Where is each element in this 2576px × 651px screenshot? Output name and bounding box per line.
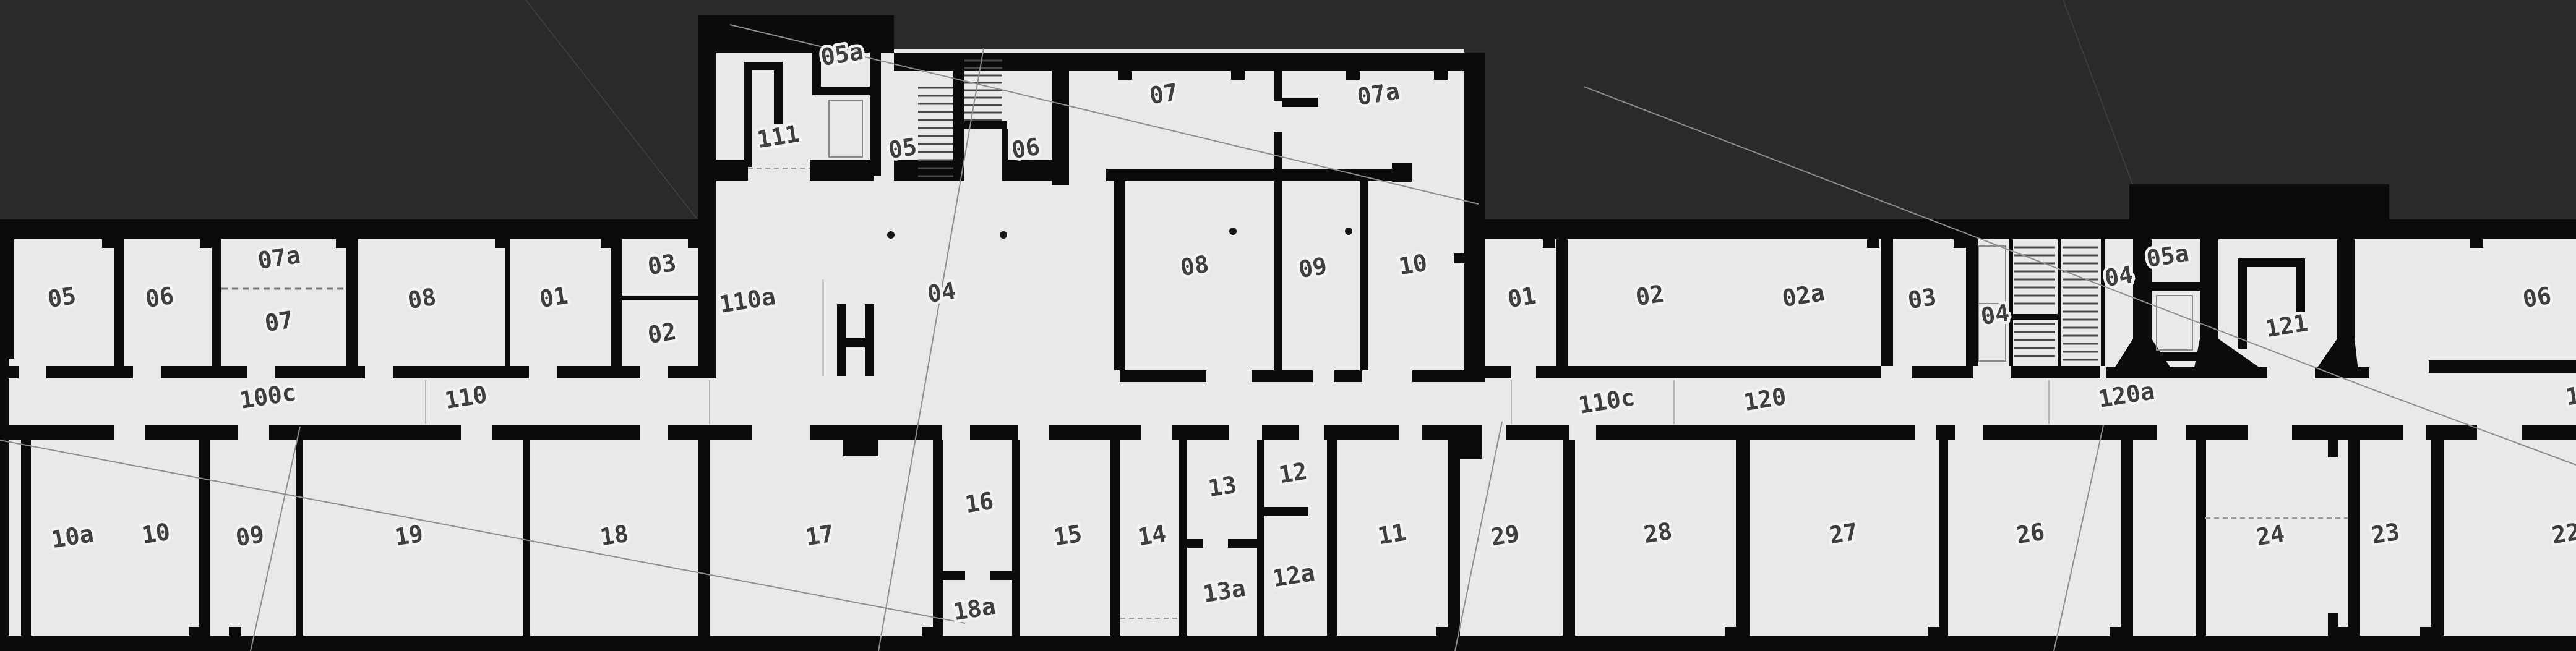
room-label: 09	[234, 521, 266, 552]
room-label: 19	[393, 520, 425, 551]
room-label: 01	[1506, 282, 1538, 313]
room-label: 01	[538, 282, 570, 313]
room-label: 04	[925, 277, 958, 308]
room-label: 02	[1634, 280, 1666, 312]
room-label: 06	[2521, 282, 2553, 313]
room-label: 12	[1277, 457, 1309, 489]
room-label: 10	[1397, 249, 1429, 281]
room-label: 15	[1052, 520, 1084, 551]
floorplan-drawing: 05a11105060707a050607a0708010302110a0408…	[0, 0, 2576, 651]
room-label: 10	[140, 518, 172, 550]
room-label: 26	[2014, 518, 2046, 550]
room-label: 07	[1148, 79, 1180, 110]
room-label: 08	[1179, 250, 1211, 282]
room-label: 07	[263, 306, 295, 338]
room-label: 06	[1010, 133, 1042, 164]
room-label: 29	[1489, 520, 1521, 551]
room-label: 04	[2103, 261, 2135, 292]
room-label: 04	[1979, 299, 2011, 331]
room-label: 22	[2550, 518, 2576, 550]
room-label: 24	[2254, 520, 2286, 551]
room-label: 06	[144, 282, 176, 313]
room-label: 18	[598, 520, 630, 551]
room-label: 09	[1297, 252, 1329, 284]
room-label: 02	[646, 318, 678, 349]
room-label: 13	[1206, 471, 1239, 503]
room-label: 05	[46, 282, 78, 313]
room-label: 08	[406, 283, 438, 315]
room-label: 11	[1376, 519, 1408, 550]
room-label: 17	[804, 520, 836, 551]
room-label: 03	[1906, 283, 1938, 315]
room-label: 28	[1642, 517, 1674, 549]
room-label: 14	[1136, 520, 1168, 551]
room-label: 23	[2369, 518, 2402, 550]
room-label: 03	[646, 249, 678, 281]
room-label: 27	[1827, 518, 1860, 550]
room-label: 05	[887, 133, 919, 164]
room-label: 16	[963, 487, 995, 519]
